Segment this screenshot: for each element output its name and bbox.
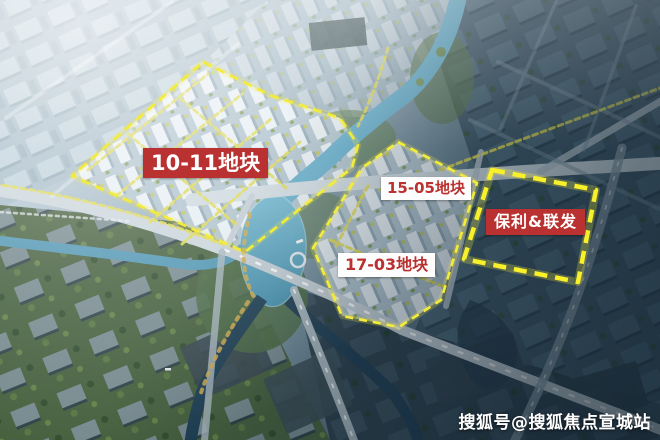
aerial-masterplan: 10-11地块 15-05地块 17-03地块 保利&联发 搜狐号@搜狐焦点宣城… [0, 0, 660, 440]
plot-label-10-11: 10-11地块 [143, 148, 268, 178]
plot-label-15-05: 15-05地块 [381, 177, 471, 200]
plot-label-baoli-lianfa: 保利&联发 [486, 209, 585, 235]
watermark-sohu: 搜狐号@搜狐焦点宣城站 [459, 408, 652, 433]
plot-label-17-03: 17-03地块 [338, 253, 435, 277]
